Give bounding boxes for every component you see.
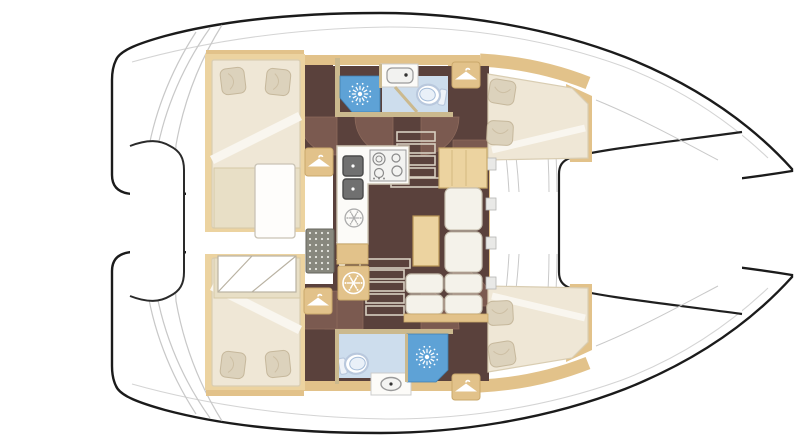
nav-cabinet xyxy=(439,148,487,188)
settee-cushion xyxy=(406,274,443,293)
stern-platform xyxy=(130,141,184,301)
settee-cushion xyxy=(445,188,482,230)
hanging-locker xyxy=(452,62,480,88)
cockpit-table xyxy=(255,164,295,238)
hanging-locker xyxy=(452,374,480,400)
hanging-locker xyxy=(304,288,332,314)
shower-head-icon-port xyxy=(349,83,371,105)
settee-frame xyxy=(404,314,488,322)
hanging-locker xyxy=(305,148,333,176)
pillow xyxy=(486,300,513,325)
galley-cabinet xyxy=(337,244,368,264)
deck-grate-icon xyxy=(306,229,334,273)
stove-icon xyxy=(370,150,406,181)
settee-cushion xyxy=(406,295,443,314)
pillow xyxy=(487,78,516,106)
settee-cushion xyxy=(445,232,482,272)
salon-table xyxy=(413,216,439,266)
catamaran-floor-plan xyxy=(0,0,800,446)
pillow xyxy=(486,120,513,145)
pillow xyxy=(220,67,247,96)
bath-sink-port xyxy=(381,64,418,87)
pillow xyxy=(265,68,292,96)
folding-table xyxy=(218,256,296,292)
settee-cushion xyxy=(445,274,482,293)
shower-head-icon-starboard xyxy=(416,346,438,368)
floor-plan-canvas xyxy=(0,0,800,446)
pillow xyxy=(220,351,247,380)
fridge-box xyxy=(338,266,369,300)
pillow xyxy=(487,340,516,368)
pillow xyxy=(265,350,292,378)
settee-cushion xyxy=(445,295,482,314)
